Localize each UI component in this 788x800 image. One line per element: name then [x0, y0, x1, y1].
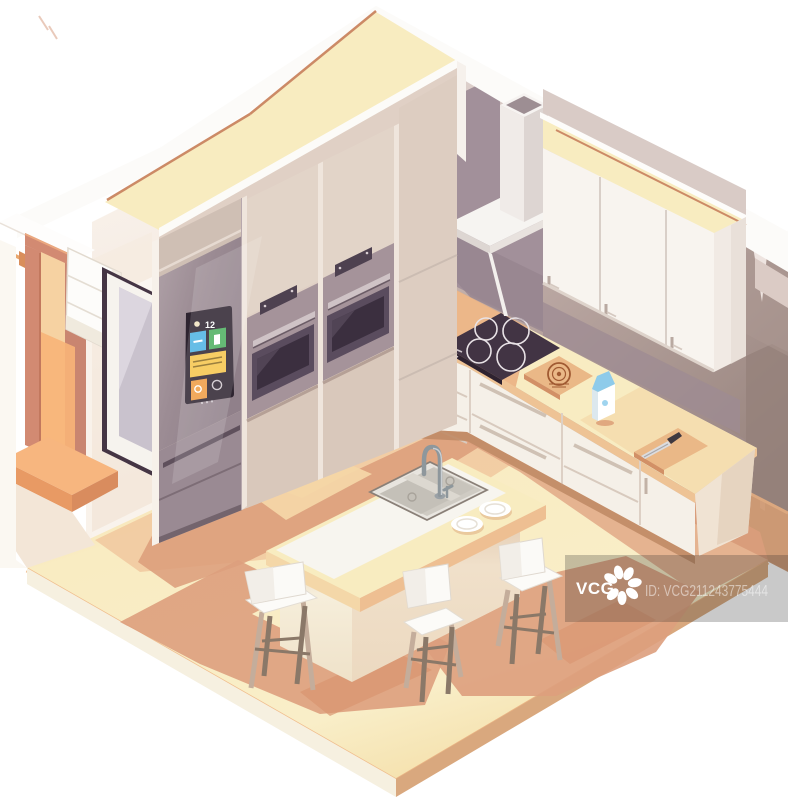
svg-text:ID: VCG211243775444: ID: VCG211243775444 [645, 583, 768, 600]
